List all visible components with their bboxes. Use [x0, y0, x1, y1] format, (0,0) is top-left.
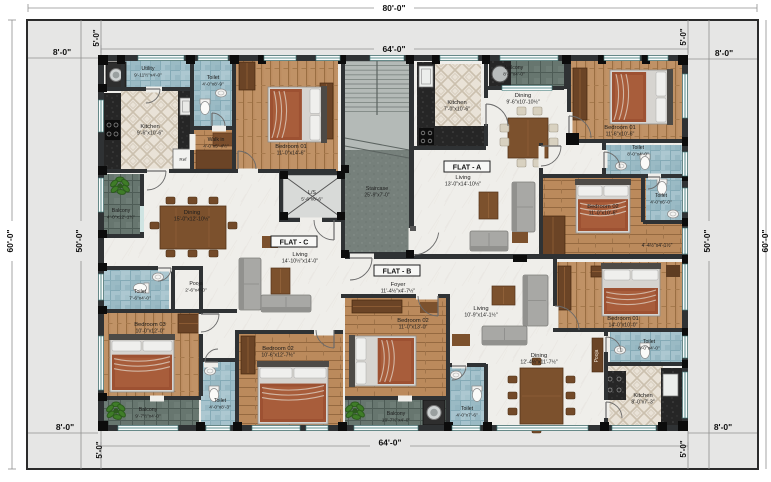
svg-text:FLAT - B: FLAT - B: [383, 269, 412, 276]
svg-text:Kitchen: Kitchen: [633, 393, 652, 399]
svg-text:10'-9"x14'-1½": 10'-9"x14'-1½": [464, 312, 498, 319]
svg-text:4'-0"x8'-9": 4'-0"x8'-9": [202, 82, 224, 88]
svg-text:Toilet: Toilet: [134, 289, 147, 295]
svg-text:Bedroom 01: Bedroom 01: [607, 316, 639, 322]
svg-text:Dining: Dining: [515, 93, 531, 99]
svg-text:Toilet: Toilet: [655, 193, 668, 199]
svg-text:4'-0"x6'-0": 4'-0"x6'-0": [650, 200, 672, 206]
svg-text:Balcony: Balcony: [112, 208, 131, 214]
svg-text:4'-0"x7'-6": 4'-0"x7'-6": [456, 413, 478, 419]
svg-text:11'-0"x10'-6": 11'-0"x10'-6": [589, 211, 618, 217]
svg-text:14'-0"x10'-0": 14'-0"x10'-0": [608, 323, 637, 329]
svg-text:8'-0"x4'-0": 8'-0"x4'-0": [627, 152, 649, 158]
svg-text:5'-0": 5'-0": [92, 29, 101, 46]
svg-text:5'-0": 5'-0": [679, 440, 688, 457]
svg-text:50'-0": 50'-0": [702, 229, 712, 252]
svg-text:Bedroom 02: Bedroom 02: [262, 346, 294, 352]
svg-text:Toilet: Toilet: [214, 398, 227, 404]
svg-text:Pooja: Pooja: [594, 349, 600, 362]
svg-text:64'-0": 64'-0": [378, 438, 401, 448]
svg-text:5'-0": 5'-0": [95, 441, 104, 458]
svg-text:64'-0": 64'-0": [382, 44, 405, 54]
svg-text:Pooja: Pooja: [189, 281, 202, 287]
svg-text:8'-0": 8'-0": [56, 422, 74, 432]
svg-text:11'-4½"x4'-7½": 11'-4½"x4'-7½": [381, 288, 416, 295]
svg-text:Bedroom 03: Bedroom 03: [134, 322, 166, 328]
svg-text:Kitchen: Kitchen: [140, 124, 159, 130]
svg-text:8'-0": 8'-0": [53, 47, 71, 57]
svg-text:5'-0": 5'-0": [679, 28, 688, 45]
svg-text:80'-0": 80'-0": [382, 3, 405, 13]
svg-text:Kitchen: Kitchen: [447, 100, 466, 106]
svg-text:10'-7½"x4'-0": 10'-7½"x4'-0": [382, 417, 410, 424]
svg-text:4'-0"x5'-4½": 4'-0"x5'-4½": [203, 143, 229, 150]
svg-text:50'-0": 50'-0": [74, 229, 84, 252]
svg-text:Balcony: Balcony: [387, 411, 406, 417]
svg-text:8'-0"x7'-3": 8'-0"x7'-3": [631, 400, 654, 406]
svg-text:8'-0": 8'-0": [715, 48, 733, 58]
svg-text:10'-6"x12'-7½": 10'-6"x12'-7½": [261, 352, 295, 359]
svg-text:FLAT - C: FLAT - C: [280, 240, 309, 247]
svg-text:Bedroom 01: Bedroom 01: [275, 144, 307, 150]
svg-text:Ref: Ref: [179, 157, 187, 162]
svg-text:10'-0"x12'-0": 10'-0"x12'-0": [135, 329, 164, 335]
svg-text:11'-0"x13'-0": 11'-0"x13'-0": [399, 325, 428, 331]
svg-text:15'-0"x12'-10½": 15'-0"x12'-10½": [174, 216, 210, 223]
svg-text:Living: Living: [473, 306, 488, 312]
svg-text:9'-11½"x4'-0": 9'-11½"x4'-0": [134, 72, 162, 79]
svg-text:Bedroom 01: Bedroom 01: [604, 125, 636, 131]
svg-text:13'-0"x14'-10½": 13'-0"x14'-10½": [445, 181, 481, 188]
svg-text:9'-6"x10'-6": 9'-6"x10'-6": [137, 131, 163, 137]
svg-text:Staircase: Staircase: [366, 186, 388, 192]
svg-text:7'-6"x4'-0": 7'-6"x4'-0": [129, 296, 151, 302]
svg-text:Utility: Utility: [141, 66, 154, 72]
svg-text:Walk in: Walk in: [208, 137, 225, 143]
svg-text:L/S: L/S: [308, 190, 316, 196]
svg-text:5'-6"x6'-6": 5'-6"x6'-6": [301, 197, 323, 203]
svg-text:8'-0": 8'-0": [714, 422, 732, 432]
svg-text:Living: Living: [292, 252, 307, 258]
svg-text:Balcony: Balcony: [505, 65, 524, 71]
svg-text:Bedroom 02: Bedroom 02: [397, 318, 429, 324]
svg-text:FLAT - A: FLAT - A: [453, 165, 481, 172]
svg-text:12'-4½"x11'-7½": 12'-4½"x11'-7½": [520, 359, 557, 366]
svg-text:Balcony: Balcony: [139, 407, 158, 413]
svg-text:Toilet: Toilet: [632, 145, 645, 151]
svg-text:2'-6"x4'-0": 2'-6"x4'-0": [185, 288, 207, 294]
svg-text:60'-0": 60'-0": [760, 229, 770, 252]
svg-text:4'-4½"x4'-1½": 4'-4½"x4'-1½": [642, 242, 673, 249]
svg-text:11'-6"x10'-6": 11'-6"x10'-6": [606, 132, 635, 138]
svg-text:Toilet: Toilet: [207, 75, 220, 81]
svg-text:Foyer: Foyer: [391, 282, 406, 288]
svg-text:4'-0"x8'-3": 4'-0"x8'-3": [209, 405, 231, 411]
svg-text:Dining: Dining: [531, 353, 547, 359]
svg-text:Bedroom 02: Bedroom 02: [587, 204, 619, 210]
svg-text:14'-10½"x14'-0": 14'-10½"x14'-0": [282, 258, 318, 265]
svg-text:60'-0": 60'-0": [5, 229, 15, 252]
svg-text:Dining: Dining: [184, 210, 200, 216]
svg-text:Living: Living: [455, 175, 470, 181]
svg-text:9'-6"x10'-10½": 9'-6"x10'-10½": [506, 99, 540, 106]
svg-text:8'-0"x4'-0": 8'-0"x4'-0": [638, 346, 660, 352]
svg-text:7'-0"x10'-6": 7'-0"x10'-6": [444, 107, 470, 113]
svg-text:25'-9"x7'-0": 25'-9"x7'-0": [364, 193, 389, 199]
svg-text:8'-9"x4'-0": 8'-9"x4'-0": [503, 72, 525, 78]
svg-text:9'-7½"x4'-0": 9'-7½"x4'-0": [135, 413, 161, 420]
svg-text:11'-0"x14'-6": 11'-0"x14'-6": [277, 151, 306, 157]
svg-text:4'-0"x12'-1½": 4'-0"x12'-1½": [107, 214, 135, 221]
svg-text:Toilet: Toilet: [461, 406, 474, 412]
svg-text:Toilet: Toilet: [643, 339, 656, 345]
